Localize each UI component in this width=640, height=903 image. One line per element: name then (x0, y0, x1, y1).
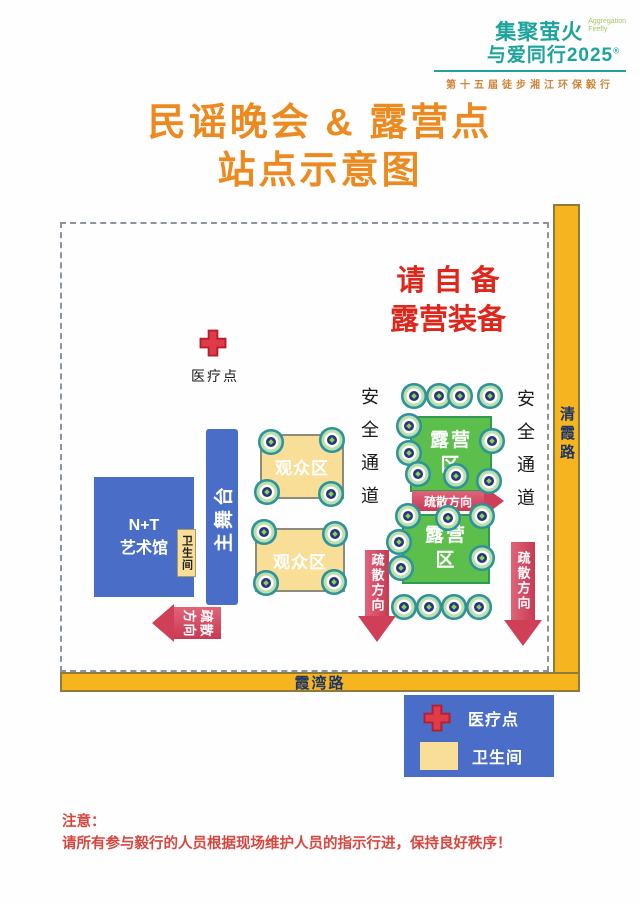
tent-marker-icon (330, 529, 340, 539)
tent-marker-icon (485, 391, 495, 401)
tent-marker-icon (262, 487, 272, 497)
evacuation-label: 疏散方向 (424, 493, 472, 510)
tent-marker-icon (455, 391, 465, 401)
tent-marker-icon (329, 577, 339, 587)
arrow-head-icon (504, 620, 542, 646)
legend-medical-label: 医疗点 (468, 706, 519, 730)
road-qingxia-label: 清霞路 (556, 406, 577, 688)
note-line1: 注意： (62, 812, 587, 834)
evac-char: 疏 (199, 609, 213, 623)
tent-marker-icon (394, 537, 404, 547)
tent-marker-icon (449, 602, 459, 612)
tent-marker-icon (451, 471, 461, 481)
camping-notice: 请 自 备 露营装备 (374, 262, 522, 340)
main-stage-block: 主舞台 (206, 429, 238, 605)
brand-name-bottom: 与爱同行2025® (434, 46, 620, 66)
medical-point-label: 医疗点 (180, 366, 250, 386)
tent-marker-icon (477, 511, 487, 521)
legend-toilet-row: 卫生间 (420, 742, 554, 770)
brand-en-line2: Firefly (588, 26, 626, 34)
road-qingxia: 清霞路 (553, 204, 580, 690)
evac-char: 散 (199, 623, 213, 637)
tent-marker-icon (477, 553, 487, 563)
evacuation-label-rotated: 方 向 疏 散 (174, 607, 221, 639)
tent-marker-icon (261, 578, 271, 588)
legend-toilet-label: 卫生间 (472, 744, 523, 768)
medical-cross-icon (198, 328, 228, 358)
tent-marker-icon (474, 602, 484, 612)
event-map-poster: 集聚萤火 Aggregation Firefly 与爱同行2025® 第十五届徒… (0, 0, 640, 903)
event-logo: 集聚萤火 Aggregation Firefly 与爱同行2025® 第十五届徒… (434, 16, 626, 91)
road-xiawan-label: 霞湾路 (294, 672, 345, 693)
tent-marker-icon (484, 476, 494, 486)
safety-corridor-left: 安全通道 (355, 387, 381, 519)
camping-area-line1: 露营 (425, 524, 467, 549)
tent-marker-icon (259, 527, 269, 537)
brand-en-line1: Aggregation (588, 18, 626, 26)
camping-area-upper: 露营 区 (410, 416, 492, 492)
tent-marker-icon (424, 602, 434, 612)
page-title: 民谣晚会 & 露营点 站点示意图 (0, 100, 640, 195)
map-legend: 医疗点 卫生间 (404, 695, 554, 777)
note-line2: 请所有参与毅行的人员根据现场维护人员的指示行进，保持良好秩序！ (62, 834, 587, 856)
tent-marker-icon (413, 469, 423, 479)
arrow-head-icon (484, 486, 504, 516)
tent-marker-icon (399, 602, 409, 612)
tent-marker-icon (396, 563, 406, 573)
title-line1: 民谣晚会 & 露营点 (0, 100, 640, 148)
camping-area-lower: 露营 区 (402, 514, 490, 584)
legend-medical-row: 医疗点 (420, 703, 554, 733)
tent-marker-icon (404, 448, 414, 458)
tent-marker-icon (326, 489, 336, 499)
tent-marker-icon (404, 421, 414, 431)
camping-area-line1: 露营 (430, 429, 472, 454)
evacuation-arrow-down-left: 疏散方向 (358, 550, 396, 642)
tent-marker-icon (403, 511, 413, 521)
camping-area-line2: 区 (435, 549, 456, 574)
evac-char: 向 (182, 623, 196, 637)
evacuation-label: 疏散方向 (368, 553, 387, 613)
brand-name-english: Aggregation Firefly (588, 16, 626, 35)
arrow-head-icon (358, 616, 396, 642)
toilet-swatch-icon (420, 742, 458, 770)
site-map: 请 自 备 露营装备 医疗点 N+T 艺术馆 卫生间 主舞台 观众区 观众区 露… (60, 222, 549, 672)
audience-area-label: 观众区 (275, 454, 329, 479)
gallery-line1: N+T (129, 514, 160, 537)
medical-cross-icon (420, 703, 454, 733)
tent-marker-icon (434, 391, 444, 401)
tent-marker-icon (443, 513, 453, 523)
evacuation-arrow-down-right: 疏散方向 (504, 542, 542, 646)
notice-footer: 注意： 请所有参与毅行的人员根据现场维护人员的指示行进，保持良好秩序！ (62, 812, 587, 856)
main-stage-label: 主舞台 (209, 482, 236, 551)
event-name: 第十五届徒步湘江环保毅行 (434, 76, 626, 91)
evacuation-arrow-left: 方 向 疏 散 (152, 604, 221, 642)
tent-marker-icon (266, 437, 276, 447)
toilet-block: 卫生间 (177, 529, 196, 577)
logo-divider (434, 70, 626, 72)
toilet-label: 卫生间 (179, 535, 195, 571)
arrow-head-icon (152, 604, 174, 642)
evacuation-arrow-right: 疏散方向 (412, 486, 504, 516)
registered-mark: ® (613, 47, 620, 56)
audience-area-label: 观众区 (273, 548, 327, 573)
evacuation-label: 疏散方向 (514, 551, 533, 611)
brand-name-top: 集聚萤火 (495, 16, 583, 46)
safety-corridor-right: 安全通道 (511, 389, 537, 521)
tent-marker-icon (409, 391, 419, 401)
brand-bottom-text: 与爱同行2025 (487, 45, 613, 66)
road-xiawan: 霞湾路 (60, 672, 580, 692)
tent-marker-icon (327, 435, 337, 445)
tent-marker-icon (487, 436, 497, 446)
notice-line2: 露营装备 (374, 301, 522, 340)
gallery-line2: 艺术馆 (120, 537, 168, 560)
title-line2: 站点示意图 (0, 148, 640, 196)
evac-char: 方 (182, 609, 196, 623)
notice-line1: 请 自 备 (374, 262, 522, 301)
